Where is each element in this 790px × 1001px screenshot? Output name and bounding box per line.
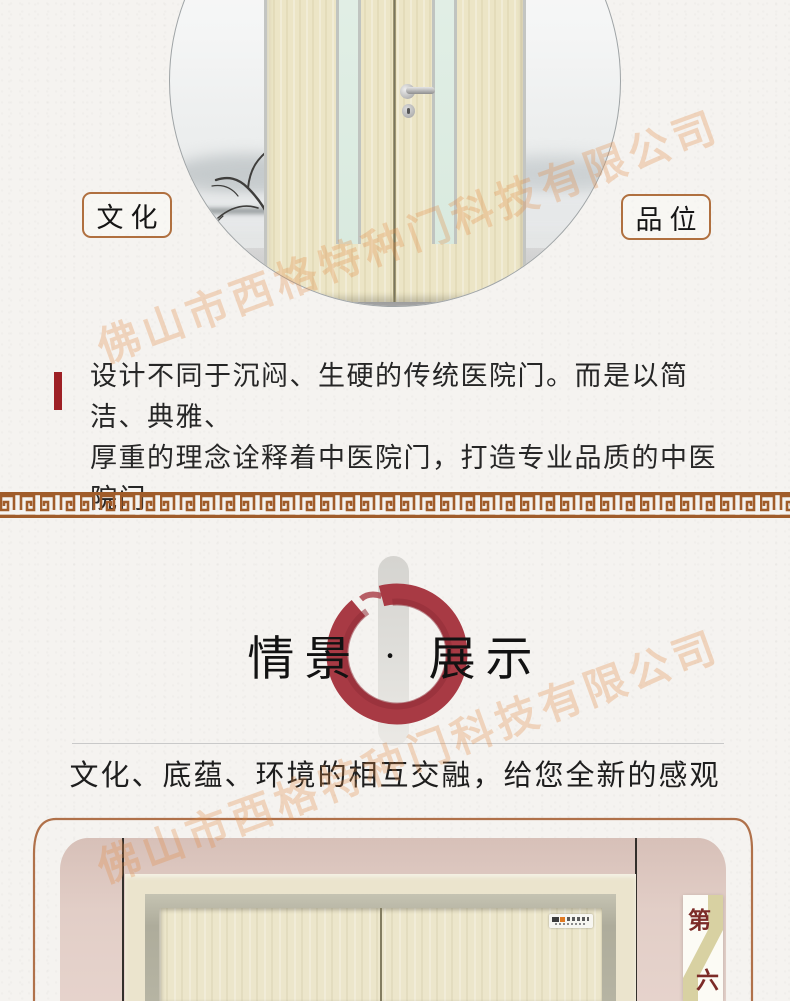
hero-double-door (264, 0, 526, 302)
section-divider-line (72, 743, 724, 744)
culture-label-box: 文化 (82, 192, 172, 238)
door-center-gap (393, 0, 396, 302)
door-glass-right (432, 0, 457, 244)
door-glass-left (336, 0, 361, 244)
intro-line-1: 设计不同于沉闷、生硬的传统医院门。而是以简洁、典雅、 (90, 356, 744, 438)
section-title-dot: · (383, 633, 406, 678)
door-keyhole (402, 104, 415, 118)
section-title: 情景·展示 (0, 620, 790, 689)
taste-label-box: 品位 (621, 194, 711, 240)
meander-border (0, 492, 790, 518)
section-title-right: 展示 (429, 634, 543, 686)
chinese-frame-outline (0, 810, 790, 1001)
hero-circle-photo (169, 0, 621, 307)
badge-char-top: 第 (688, 901, 711, 935)
taste-label: 品位 (629, 198, 704, 237)
badge-char-bottom: 六 (696, 961, 719, 995)
promo-page: 文化 品位 设计不同于沉闷、生硬的传统医院门。而是以简洁、典雅、 厚重的理念诠释… (0, 0, 790, 1001)
culture-label: 文化 (90, 196, 165, 235)
red-accent-bar (54, 372, 62, 410)
number-ribbon: 第 六 (683, 895, 723, 1001)
door-handle-lever (406, 87, 435, 94)
section-tagline: 文化、底蕴、环境的相互交融，给您全新的感观 (0, 752, 790, 794)
section-title-left: 情景 (247, 634, 361, 686)
